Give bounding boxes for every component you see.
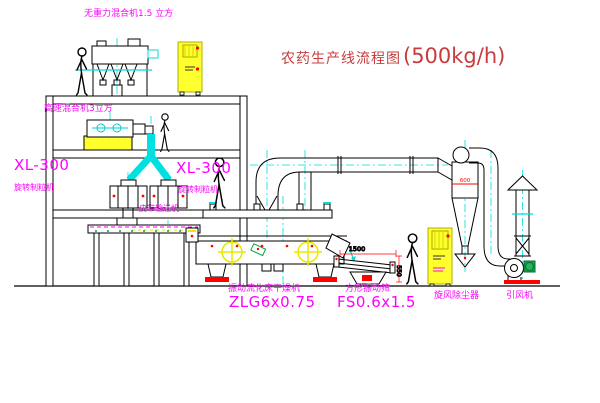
exhaust-duct bbox=[256, 156, 452, 210]
label-high-speed-mixer: 高速混合机3立方 bbox=[44, 105, 113, 114]
induced-draft-fan bbox=[504, 259, 540, 285]
cyclone-dia-dim: 600 bbox=[460, 178, 471, 184]
control-cabinet-cyclone bbox=[428, 228, 452, 286]
label-granulator-right-name: 旋转制粒机 bbox=[178, 186, 218, 194]
label-granulator-right-model: XL-300 bbox=[176, 161, 231, 176]
control-cabinet-top bbox=[178, 42, 202, 95]
label-granulator-left-name: 旋转制粒机 bbox=[14, 184, 54, 192]
process-flow-drawing: 1500 550 600 bbox=[0, 0, 600, 403]
person-figure-mid-floor bbox=[161, 114, 169, 152]
exhaust-stack bbox=[508, 176, 537, 256]
high-speed-mixer bbox=[84, 120, 153, 150]
title-text: 农药生产线流程图 bbox=[281, 48, 401, 68]
label-fan: 引风机 bbox=[506, 292, 533, 301]
label-gravity-mixer: 无重力混合机1.5 立方 bbox=[84, 10, 173, 19]
fluid-bed-dryer bbox=[186, 203, 356, 282]
label-dryer-model: ZLG6x0.75 bbox=[229, 295, 316, 310]
title-capacity: (500kg/h) bbox=[403, 44, 505, 68]
label-granulator-left-model: XL-300 bbox=[14, 158, 69, 173]
person-figure-ground bbox=[407, 234, 418, 284]
screen-length-dim: 1500 bbox=[349, 245, 366, 253]
screen-height-dim: 550 bbox=[395, 265, 402, 277]
person-figure-top-floor bbox=[77, 48, 88, 95]
label-cyclone: 旋风除尘器 bbox=[434, 292, 479, 301]
gravity-mixer bbox=[75, 39, 158, 96]
label-belt-conveyor: 皮带输送机 bbox=[139, 205, 179, 213]
label-screen-model: FS0.6x1.5 bbox=[337, 295, 416, 310]
drawing-title: 农药生产线流程图 (500kg/h) bbox=[281, 44, 505, 68]
belt-conveyor bbox=[88, 225, 200, 286]
